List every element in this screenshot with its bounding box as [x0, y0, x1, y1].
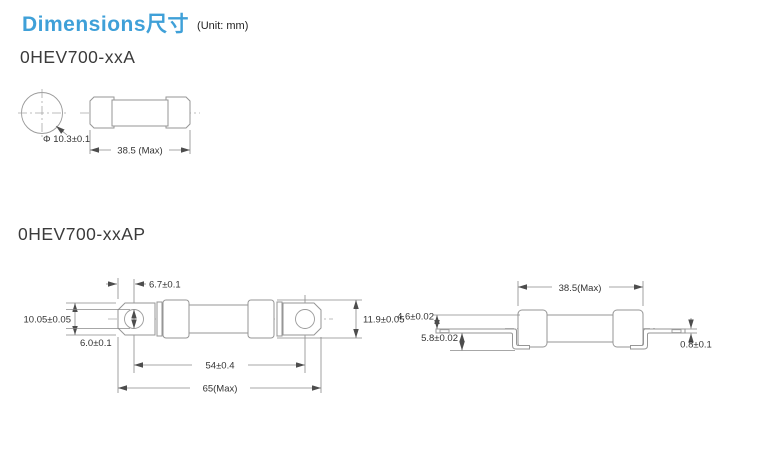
overall-length-label: 65(Max) [203, 384, 238, 395]
drawing-ap-front-view: 6.7±0.1 10.05±0.05 6.0±0.1 11.9±0.05 54±… [0, 265, 450, 405]
right-end-cap [613, 310, 643, 347]
fuse-right-cap [166, 97, 190, 128]
hole-diameter-label: 6.0±0.1 [80, 338, 112, 349]
body-length-label: 38.5(Max) [559, 283, 602, 294]
fuse-left-cap [90, 97, 114, 128]
right-washer [277, 302, 282, 336]
fuse-body [547, 315, 613, 342]
bottom-offset-label: 5.8±0.02 [421, 333, 458, 344]
left-end-cap [163, 300, 189, 338]
drawing-ap-side-view: 38.5(Max) 4.6±0.02 5.8±0.02 0.8±0.1 [400, 270, 720, 365]
right-terminal-tab [283, 303, 321, 335]
fuse-body [112, 100, 168, 126]
hole-pitch-label: 54±0.4 [206, 361, 235, 372]
model-heading-a: 0HEV700-xxA [20, 47, 135, 68]
right-end-cap [248, 300, 274, 338]
length-label: 38.5 (Max) [117, 146, 162, 157]
drawing-a-fuse: Φ 10.3±0.1 38.5 (Max) [10, 82, 240, 174]
top-offset-label: 4.6±0.02 [397, 312, 434, 323]
unit-note: (Unit: mm) [197, 20, 248, 32]
page-header: Dimensions尺寸(Unit: mm) [22, 8, 248, 38]
terminal-thickness-label: 0.8±0.1 [680, 340, 712, 351]
datasheet-dimensions-page: Dimensions尺寸(Unit: mm) 0HEV700-xxA 0HEV7… [0, 0, 767, 467]
left-terminal-tab [118, 303, 155, 335]
left-washer [157, 302, 162, 336]
fuse-body [189, 305, 248, 333]
hole-offset-label: 6.7±0.1 [149, 280, 181, 291]
model-heading-ap: 0HEV700-xxAP [18, 224, 146, 245]
left-end-cap [518, 310, 547, 347]
tab-height-label: 10.05±0.05 [24, 315, 71, 326]
diameter-label: Φ 10.3±0.1 [43, 134, 90, 145]
page-title: Dimensions尺寸 [22, 8, 189, 38]
